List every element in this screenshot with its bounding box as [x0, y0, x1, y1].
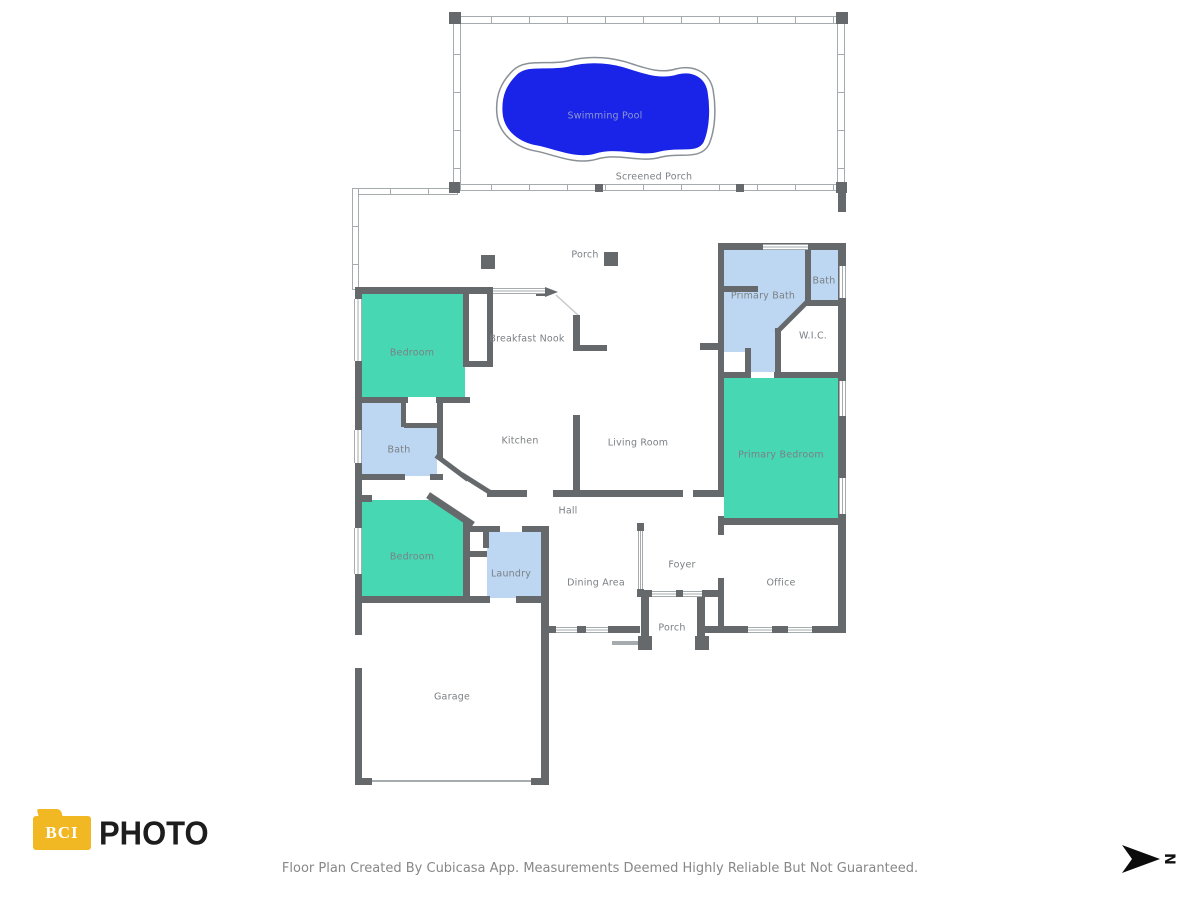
window — [839, 381, 846, 416]
wall-segment — [693, 490, 724, 497]
wall-segment — [718, 525, 724, 535]
camera-logo-icon: BCI — [33, 816, 91, 850]
wall-segment — [644, 590, 652, 597]
wall-segment — [430, 474, 443, 480]
label-porch-bottom: Porch — [658, 623, 685, 634]
window — [493, 288, 545, 294]
swimming-pool-shape — [500, 61, 712, 158]
label-office: Office — [766, 578, 795, 589]
wall-segment — [774, 372, 845, 378]
label-foyer: Foyer — [668, 560, 695, 571]
wall-segment — [487, 293, 493, 367]
wall-segment — [812, 626, 846, 633]
opening-line — [612, 641, 641, 645]
window — [354, 299, 362, 361]
screen-rail — [453, 16, 845, 24]
label-kitchen: Kitchen — [501, 436, 538, 447]
porch-post — [638, 636, 652, 650]
wall-segment — [573, 415, 580, 493]
label-bedroom-1: Bedroom — [390, 348, 434, 359]
window — [839, 266, 846, 298]
wall-segment — [772, 626, 788, 633]
window — [586, 627, 608, 633]
window — [683, 591, 702, 597]
porch-post — [695, 636, 709, 650]
window — [354, 528, 362, 574]
porch-post — [836, 12, 848, 24]
wall-segment — [577, 626, 586, 633]
window — [748, 627, 772, 633]
label-primary-bath: Primary Bath — [731, 291, 795, 302]
label-porch-top: Porch — [571, 250, 598, 261]
label-bath-2: Bath — [813, 276, 836, 287]
label-breakfast-nook: Breakfast Nook — [489, 334, 564, 345]
window — [556, 627, 577, 633]
wall-segment — [355, 600, 362, 635]
wall-segment — [641, 597, 649, 637]
wall-segment — [718, 243, 724, 378]
wall-segment — [608, 626, 640, 633]
wall-segment — [355, 495, 372, 502]
wall-segment — [745, 348, 751, 378]
wall-segment — [355, 596, 490, 603]
label-dining-area: Dining Area — [567, 578, 625, 589]
wall-segment — [697, 597, 705, 637]
screen-rail — [453, 16, 461, 190]
screen-rail — [352, 188, 359, 290]
wall-segment — [355, 287, 467, 294]
opening-line — [372, 780, 531, 782]
wall-segment — [703, 626, 748, 633]
wall-segment — [548, 626, 556, 633]
wall-segment — [355, 668, 362, 785]
label-swimming-pool: Swimming Pool — [568, 111, 643, 122]
screen-rail — [453, 184, 845, 191]
wall-segment — [718, 518, 845, 525]
plan-graphics: N — [0, 0, 1200, 900]
label-wic: W.I.C. — [799, 331, 827, 342]
wall-segment — [637, 589, 644, 597]
wall-segment — [702, 590, 718, 597]
porch-post — [449, 12, 461, 24]
porch-post — [838, 186, 846, 212]
wall-segment — [541, 633, 549, 785]
window — [652, 591, 676, 597]
wall-segment — [805, 300, 838, 306]
wall-segment — [838, 243, 846, 633]
wall-segment — [805, 250, 811, 302]
label-laundry: Laundry — [491, 569, 531, 580]
wall-segment — [531, 778, 548, 785]
wall-segment — [573, 345, 607, 351]
wall-segment — [355, 474, 405, 480]
window — [763, 244, 808, 250]
screen-rail — [352, 188, 458, 195]
wall-segment — [487, 490, 527, 497]
bci-photo-logo: BCI PHOTO — [33, 816, 209, 850]
wall-segment — [355, 778, 372, 785]
screen-rail — [837, 16, 845, 190]
label-garage: Garage — [434, 692, 470, 703]
logo-text-photo: PHOTO — [99, 817, 209, 850]
logo-text-bci: BCI — [33, 823, 91, 843]
window — [839, 478, 846, 514]
wall-segment — [404, 423, 437, 428]
wall-segment — [463, 293, 469, 367]
label-primary-bedroom: Primary Bedroom — [738, 450, 824, 461]
wall-segment — [467, 551, 487, 557]
wall-segment — [437, 403, 443, 458]
wall-segment — [718, 378, 724, 490]
wall-segment — [718, 578, 724, 633]
porch-post — [449, 182, 460, 193]
porch-post — [736, 184, 744, 192]
disclaimer-caption: Floor Plan Created By Cubicasa App. Meas… — [0, 861, 1200, 876]
wall-segment — [541, 526, 549, 633]
porch-post — [481, 255, 495, 269]
window — [638, 531, 643, 589]
wall-segment — [775, 328, 781, 378]
wall-segment — [553, 490, 683, 497]
wall-segment — [463, 361, 493, 367]
window — [788, 627, 812, 633]
label-hall: Hall — [558, 506, 577, 517]
wall-segment — [676, 590, 683, 597]
porch-post — [604, 252, 618, 266]
wall-segment — [637, 523, 644, 531]
floor-plan-canvas: N Swimming Pool Screened Porch Porch Bre… — [0, 0, 1200, 900]
label-living-room: Living Room — [608, 438, 669, 449]
wall-segment — [516, 596, 548, 603]
label-bedroom-2: Bedroom — [390, 552, 434, 563]
wall-segment — [483, 528, 489, 548]
label-screened-porch: Screened Porch — [616, 172, 693, 183]
label-bath-1: Bath — [388, 445, 411, 456]
window — [354, 430, 362, 463]
porch-post — [595, 184, 603, 192]
